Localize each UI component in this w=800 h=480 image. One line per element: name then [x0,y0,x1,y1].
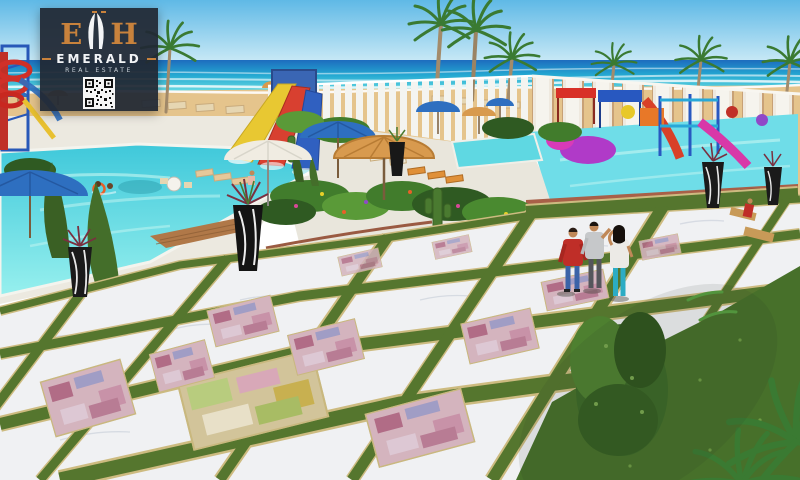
vase [389,127,405,176]
emerald-logo-plate: E H EMERALD REAL ESTATE [40,8,158,111]
resort-render: E H EMERALD REAL ESTATE [0,0,800,480]
brand-dash-right [147,58,156,60]
monogram-wing-glyph [84,12,108,50]
brand-row: EMERALD [42,52,155,66]
brand-dash-left [42,58,51,60]
brand-subtitle: REAL ESTATE [65,67,133,74]
brand-name: EMERALD [56,52,141,66]
logo-monogram: E H [60,14,138,50]
qr-code [83,77,115,114]
monogram-letter-e: E [60,18,82,50]
monogram-letter-h: H [110,18,137,50]
